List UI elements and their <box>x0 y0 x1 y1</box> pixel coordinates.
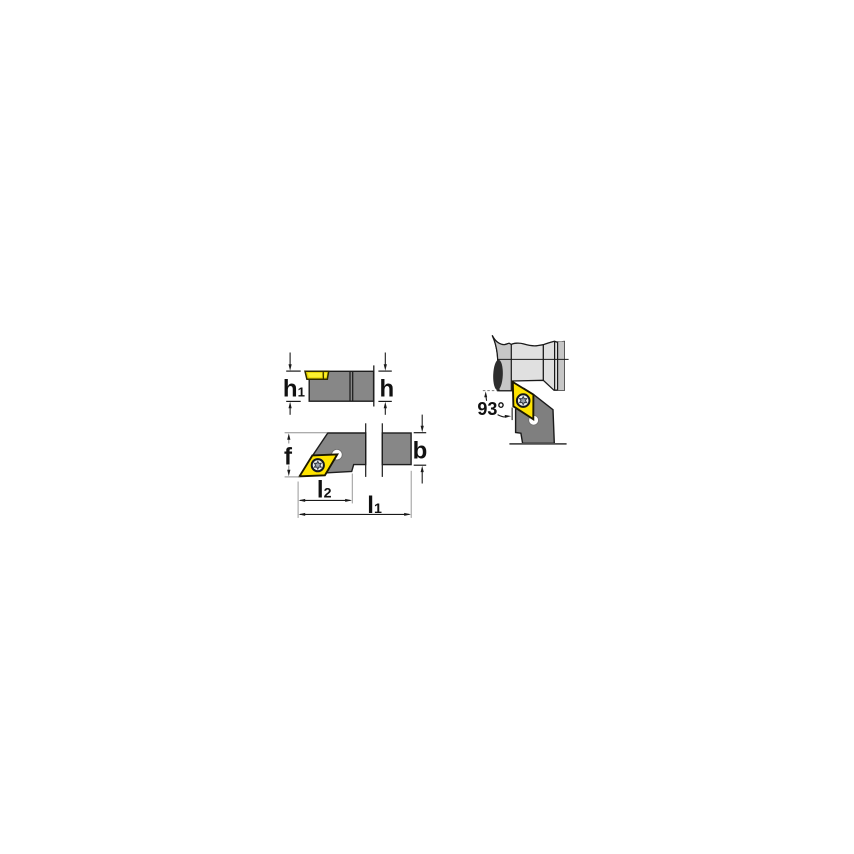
svg-text:l1: l1 <box>367 492 382 519</box>
svg-text:h: h <box>380 375 395 402</box>
svg-text:l2: l2 <box>317 477 332 504</box>
svg-text:b: b <box>413 438 428 465</box>
svg-text:f: f <box>284 443 293 470</box>
svg-text:h1: h1 <box>283 375 305 402</box>
svg-text:93°: 93° <box>477 399 504 419</box>
